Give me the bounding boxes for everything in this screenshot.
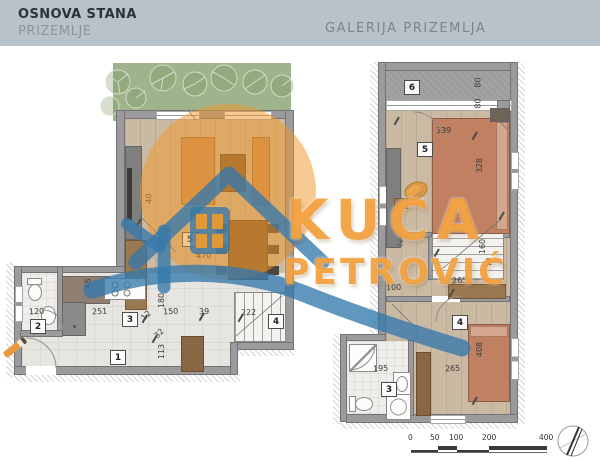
room-label-1: 1 — [110, 350, 126, 365]
scale-baseline — [411, 452, 547, 453]
scale-tick-label: 100 — [449, 433, 463, 442]
wall — [14, 266, 125, 273]
dimension: 80 — [474, 77, 483, 87]
nightstand — [490, 108, 510, 122]
watermark-text-petrovic: PETROVIĆ — [283, 252, 508, 293]
room-label-3: 3 — [381, 382, 397, 397]
dimension: 408 — [475, 342, 484, 357]
exterior-hatch — [340, 423, 518, 429]
sink-icon — [396, 376, 408, 392]
wall — [340, 334, 347, 422]
scale-segment — [438, 446, 457, 450]
scale-tick-label: 200 — [482, 433, 496, 442]
exterior-hatch — [14, 375, 240, 382]
dimension: 251 — [92, 307, 108, 317]
scale-tick-label: 50 — [430, 433, 440, 442]
window — [430, 415, 466, 424]
exterior-hatch — [518, 62, 525, 424]
scale-tick-label: 400 — [539, 433, 553, 442]
room-label-2: 2 — [30, 319, 46, 334]
exterior-hatch — [6, 262, 14, 378]
dimension: 45 — [84, 278, 93, 288]
window — [15, 286, 23, 322]
door-leaf — [181, 336, 204, 372]
scale-tick-label: 0 — [408, 433, 413, 442]
wall — [378, 62, 518, 71]
watermark-text-kuca: KUĆA — [286, 188, 487, 252]
entry-door-opening — [26, 366, 56, 375]
page-title: OSNOVA STANA — [18, 7, 137, 22]
exterior-hatch — [333, 334, 340, 424]
tv-unit — [127, 168, 132, 220]
right-plan-title: GALERIJA PRIZEMLJA — [325, 21, 487, 36]
floor-plan-page: OSNOVA STANA PRIZEMLJE GALERIJA PRIZEMLJ… — [0, 0, 600, 461]
dimension: 80 — [474, 98, 483, 108]
utility-closet — [62, 302, 86, 336]
dimension: 339 — [436, 126, 452, 136]
wall — [116, 110, 125, 272]
dimension: 180 — [157, 293, 166, 308]
washing-machine-icon — [386, 394, 411, 420]
wall — [232, 342, 294, 350]
toilet-icon — [28, 284, 42, 301]
window — [511, 152, 519, 190]
toilet-icon — [355, 397, 373, 411]
dimension: 120 — [29, 307, 45, 317]
room-label-3: 3 — [122, 312, 138, 327]
header-band: OSNOVA STANA PRIZEMLJE GALERIJA PRIZEMLJ… — [0, 0, 600, 46]
room-label-4: 4 — [268, 314, 284, 329]
room-label-6: 6 — [404, 80, 420, 95]
room-label-4: 4 — [452, 315, 468, 330]
bed-pillows — [470, 326, 508, 337]
exterior-hatch — [232, 350, 294, 356]
scale-segment — [489, 446, 547, 450]
dimension: 265 — [445, 364, 461, 374]
wall — [230, 342, 238, 375]
dimension: 150 — [163, 307, 179, 317]
window — [511, 338, 519, 380]
dimension: 222 — [241, 308, 257, 318]
door-leaf — [416, 352, 431, 416]
page-subtitle: PRIZEMLJE — [18, 24, 92, 39]
drain-icon — [73, 325, 76, 328]
dimension: 195 — [373, 364, 389, 374]
room-label-5: 5 — [417, 142, 433, 157]
dimension: 113 — [157, 344, 166, 359]
dimension: 328 — [475, 158, 484, 173]
stove — [104, 278, 146, 300]
